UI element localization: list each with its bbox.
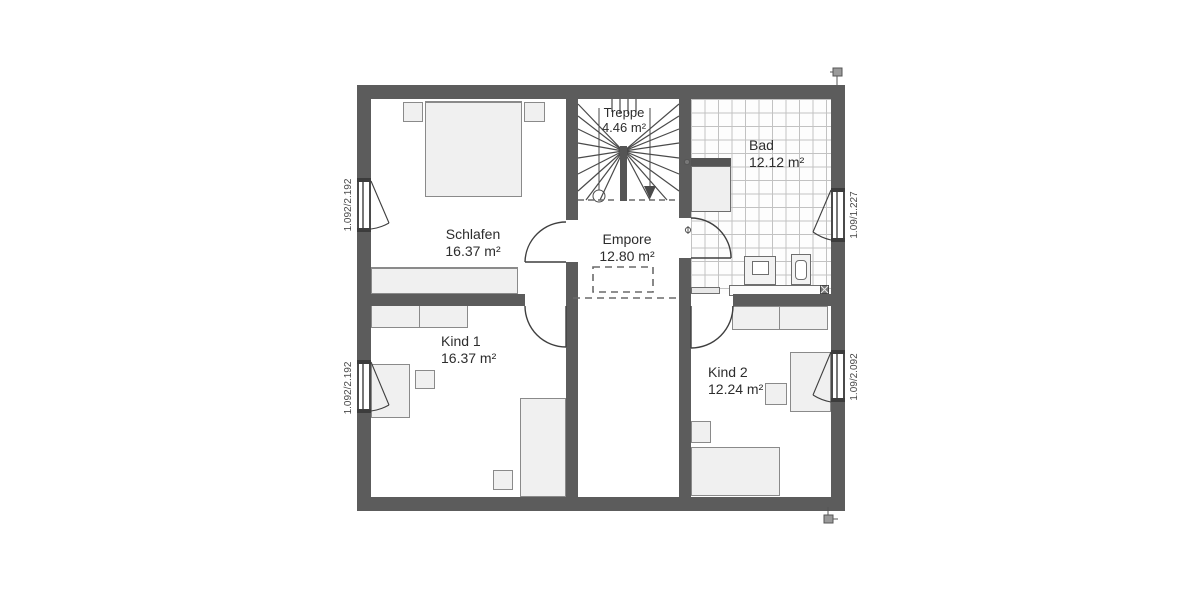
window-jamb (831, 398, 845, 402)
dresser (371, 267, 518, 294)
room-area-kind2: 12.24 m² (708, 381, 763, 398)
desk-kind2 (691, 447, 780, 496)
room-label-empore: Empore 12.80 m² (567, 231, 687, 265)
window-jamb (357, 360, 371, 364)
wardrobe-kind1-right (419, 304, 468, 328)
bed-kind1 (371, 364, 410, 418)
room-area-treppe: 4.46 m² (574, 120, 674, 135)
dimension-window-bad: 1.09/1.227 (849, 173, 861, 257)
sash-schlafen (371, 181, 389, 223)
room-label-bad: Bad 12.12 m² (749, 137, 804, 171)
stair-center-spine (620, 146, 627, 201)
stair-walk-start-icon (593, 190, 605, 202)
wall-outer-right (831, 85, 845, 511)
corner-marker-top-right-icon (833, 68, 842, 76)
side-table-kind2 (691, 421, 711, 443)
toilet-bowl (795, 260, 807, 280)
window-schlafen (357, 178, 371, 232)
washbasin-bowl (752, 261, 769, 275)
wardrobe-kind2-right (779, 306, 828, 330)
bed-double (425, 101, 522, 197)
desk-kind1 (520, 398, 566, 497)
sash-arc-schlafen (371, 223, 389, 229)
wall-schlafen-stair-lower (566, 262, 578, 306)
room-name-bad: Bad (749, 137, 804, 154)
nightstand-left (403, 102, 423, 122)
room-name-empore: Empore (567, 231, 687, 248)
room-area-bad: 12.12 m² (749, 154, 804, 171)
window-glazing (836, 354, 838, 398)
window-bad (831, 188, 845, 242)
window-glazing (836, 192, 838, 238)
room-name-kind2: Kind 2 (708, 364, 763, 381)
side-table-kind1 (415, 370, 435, 389)
wall-bad-kind2 (733, 294, 831, 306)
window-glazing (362, 182, 364, 228)
room-name-schlafen: Schlafen (403, 226, 543, 243)
shower-head-rail (691, 158, 731, 166)
window-jamb (357, 178, 371, 182)
room-label-kind2: Kind 2 12.24 m² (708, 364, 763, 398)
door-swing-kind1 (525, 306, 566, 347)
nightstand-right (524, 102, 545, 122)
wall-outer-top (357, 85, 845, 99)
wall-hall-kind2 (679, 306, 691, 497)
room-area-kind1: 16.37 m² (441, 350, 496, 367)
dimension-window-kind1: 1.092/2.192 (343, 346, 355, 430)
bed-kind2 (790, 352, 831, 412)
wall-stair-bad-lower (679, 258, 691, 306)
room-label-treppe: Treppe 4.46 m² (574, 105, 674, 135)
dimension-window-schlafen: 1.092/2.192 (343, 163, 355, 247)
floor-drain-icon (820, 285, 829, 294)
window-jamb (831, 238, 845, 242)
empore-dashed-opening (593, 267, 653, 292)
corner-marker-bottom-right-icon (824, 515, 833, 523)
wall-kind1-hall (566, 306, 578, 497)
wardrobe-kind2-left (732, 306, 780, 330)
window-jamb (357, 228, 371, 232)
door-swing-kind2 (691, 306, 733, 348)
window-glazing (362, 364, 364, 409)
room-label-kind1: Kind 1 16.37 m² (441, 333, 496, 367)
stair-down-arrow-icon (644, 186, 656, 199)
room-name-treppe: Treppe (574, 105, 674, 120)
wall-schlafen-kind1 (357, 294, 525, 306)
room-name-kind1: Kind 1 (441, 333, 496, 350)
room-label-schlafen: Schlafen 16.37 m² (403, 226, 543, 260)
chair-kind1 (493, 470, 513, 490)
floorplan-canvas: Schlafen 16.37 m² Treppe 4.46 m² Bad 12.… (0, 0, 1200, 600)
dimension-window-kind2: 1.09/2.092 (849, 335, 861, 419)
window-kind2 (831, 350, 845, 402)
window-jamb (831, 350, 845, 354)
window-kind1 (357, 360, 371, 413)
room-area-empore: 12.80 m² (567, 248, 687, 265)
window-jamb (357, 409, 371, 413)
shower (691, 166, 731, 212)
window-jamb (831, 188, 845, 192)
wall-stair-bad-upper (679, 99, 691, 218)
bath-mat (691, 287, 720, 294)
wardrobe-kind1-left (371, 304, 420, 328)
wall-outer-bottom (357, 497, 845, 511)
chair-kind2 (765, 383, 787, 405)
room-area-schlafen: 16.37 m² (403, 243, 543, 260)
